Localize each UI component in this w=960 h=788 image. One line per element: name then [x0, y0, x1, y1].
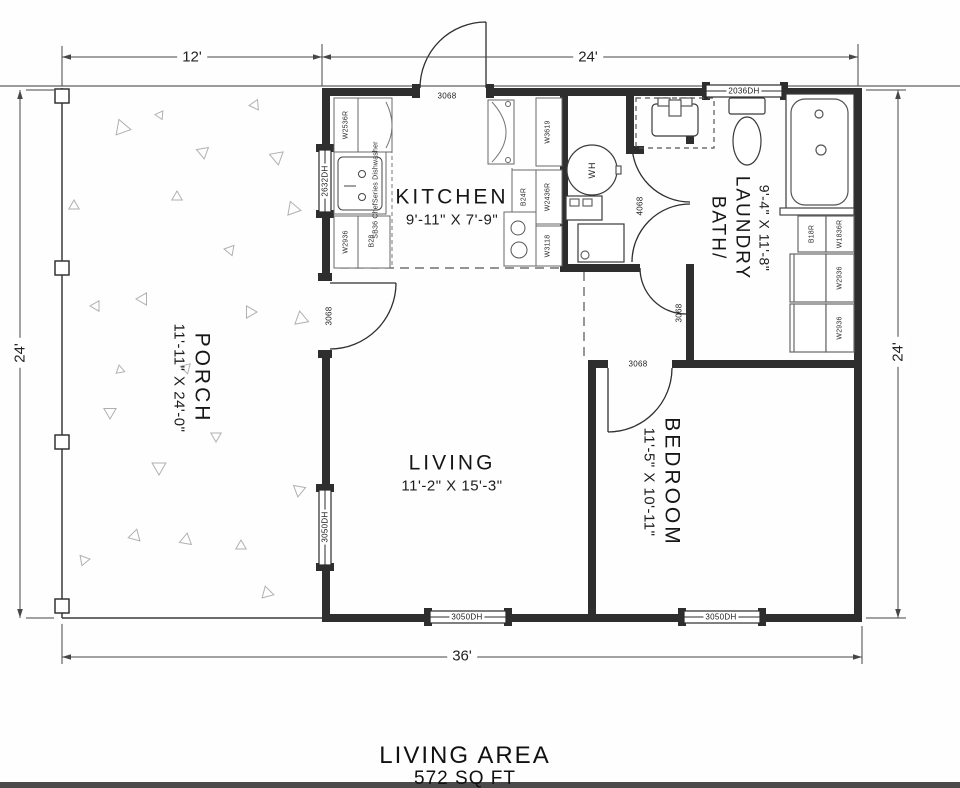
bath-laundry-label: 9'-4" X 11'-8" LAUNDRY BATH/: [706, 176, 775, 280]
cab-tag-w3118: W3118: [545, 235, 552, 258]
toilet-tank: [729, 98, 765, 114]
cab-tag-w2536r: W2536R: [343, 111, 350, 139]
bedroom-size: 11'-5" X 10'-11": [641, 417, 658, 547]
toilet-bowl: [733, 117, 761, 165]
window-tag-kitchen-left: 2632DH: [321, 163, 330, 198]
entry-door-swing: [420, 22, 486, 88]
bedroom-label: BEDROOM 11'-5" X 10'-11": [641, 417, 684, 547]
dim-right: 24': [890, 337, 907, 367]
bath-size: 9'-4" X 11'-8": [753, 176, 774, 280]
bedroom-name: BEDROOM: [660, 417, 684, 547]
open-boundaries: [340, 268, 584, 358]
kitchen-size: 9'-11" X 7'-9": [395, 212, 508, 229]
living-size: 11'-2" X 15'-3": [401, 478, 502, 495]
dimension-arrows: [17, 54, 901, 660]
window-tag-bedroom-bottom: 3050DH: [703, 613, 738, 622]
entry-door-tag: 3068: [438, 92, 457, 101]
tub-shelf: [780, 208, 854, 215]
window-tag-bath-top: 2036DH: [726, 87, 761, 96]
porch-door-tag: 3068: [325, 307, 334, 326]
cab-tag-b18r: B18R: [809, 225, 816, 243]
plan-linework: [0, 0, 960, 788]
laundry-appliance-2: [790, 304, 826, 352]
cab-tag-w2436r: W2436R: [545, 183, 552, 211]
cab-tag-sb36-dishwasher: SB36 ChefSeries Dishwasher: [373, 141, 380, 238]
kitchen-label: KITCHEN 9'-11" X 7'-9": [395, 186, 508, 229]
dim-bottom: 36': [447, 648, 477, 665]
bath-door-tag: 3068: [675, 304, 684, 323]
dim-top-left: 12': [177, 49, 207, 66]
cab-tag-w2936-b: W2936: [837, 316, 844, 339]
bath-name-1: BATH/: [706, 176, 730, 280]
cab-tag-b28: B28: [369, 234, 376, 247]
water-heater-tag: WH: [587, 162, 597, 179]
cab-tag-w2936-a: W2936: [837, 266, 844, 289]
floor-plan: 12' 24' 24' 24' 36' KITCHEN 9'-11" X 7'-…: [0, 0, 960, 788]
dimension-lines: [20, 44, 906, 664]
dim-top-right: 24': [573, 49, 603, 66]
kitchen-name: KITCHEN: [395, 186, 508, 210]
cab-tag-w3619: W3619: [545, 120, 552, 143]
porch-label: PORCH 11'-11" X 24'-0": [171, 324, 214, 433]
bedroom-door-tag: 3068: [629, 360, 648, 369]
bath-name-2: LAUNDRY: [730, 176, 754, 280]
living-name: LIVING: [401, 452, 502, 476]
laundry-appliance-1: [790, 254, 826, 302]
closet-door-tag: 4068: [636, 197, 645, 216]
plan-subtitle: 572 SQ FT: [414, 768, 516, 788]
bathtub: [786, 94, 854, 210]
cab-tag-w2936: W2936: [343, 230, 350, 253]
porch-size: 11'-11" X 24'-0": [171, 324, 188, 433]
porch-name: PORCH: [190, 324, 214, 433]
plan-title: LIVING AREA: [379, 742, 550, 770]
living-label: LIVING 11'-2" X 15'-3": [401, 452, 502, 495]
window-tag-living-left: 3050DH: [321, 509, 330, 544]
dim-left: 24': [12, 338, 29, 368]
cab-tag-w1836r: W1836R: [837, 220, 844, 248]
refrigerator: [488, 100, 514, 164]
cab-tag-b24r: B24R: [521, 188, 528, 206]
window-tag-living-bottom: 3050DH: [449, 613, 484, 622]
porch-door-swing: [330, 283, 396, 349]
